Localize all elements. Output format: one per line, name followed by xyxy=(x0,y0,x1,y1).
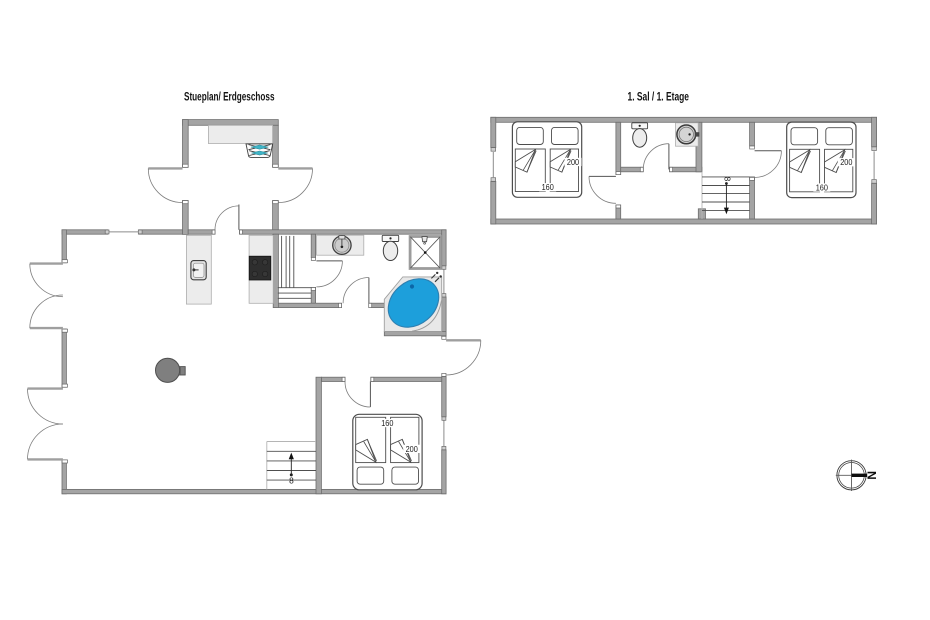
svg-text:160: 160 xyxy=(542,182,555,192)
svg-text:8: 8 xyxy=(289,475,294,485)
svg-text:Stueplan/ Erdgeschoss: Stueplan/ Erdgeschoss xyxy=(184,92,275,104)
svg-text:200: 200 xyxy=(567,157,580,167)
svg-text:8: 8 xyxy=(722,177,732,182)
svg-text:1. Sal / 1. Etage: 1. Sal / 1. Etage xyxy=(628,92,690,104)
svg-text:200: 200 xyxy=(406,444,419,454)
svg-text:160: 160 xyxy=(816,183,829,193)
svg-text:200: 200 xyxy=(840,157,853,167)
svg-text:N: N xyxy=(864,471,878,480)
svg-text:160: 160 xyxy=(381,418,394,428)
